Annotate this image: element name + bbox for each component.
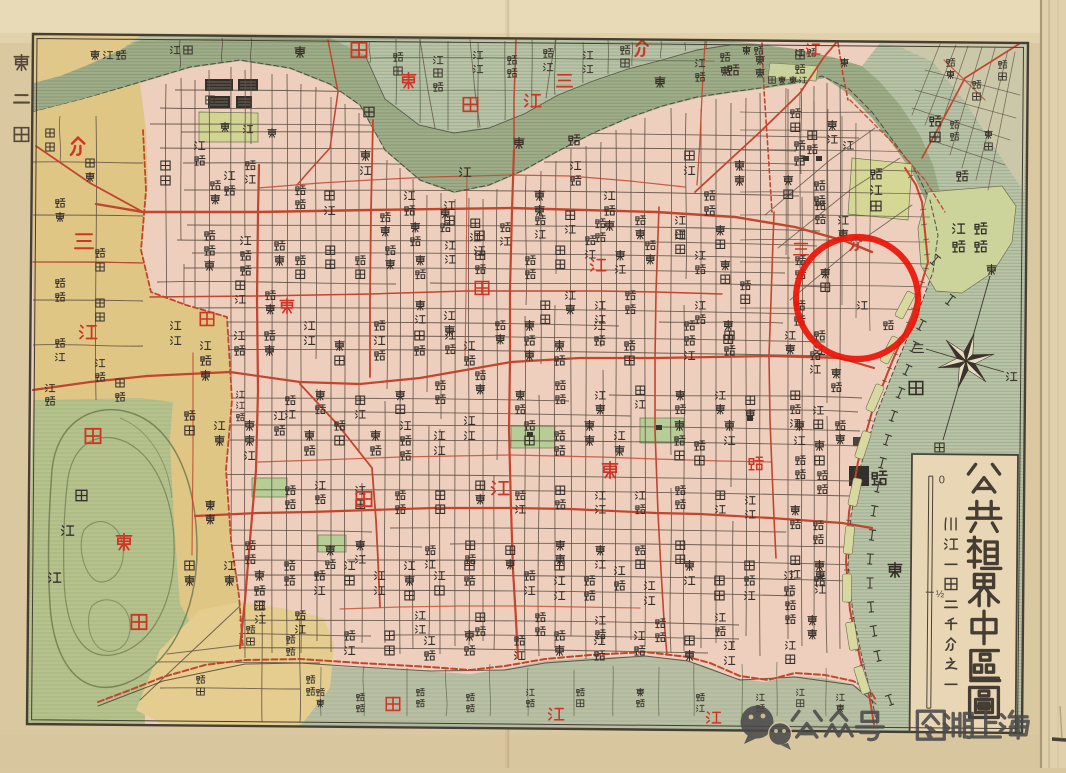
- svg-text:0: 0: [939, 474, 945, 486]
- svg-text:½: ½: [936, 589, 945, 600]
